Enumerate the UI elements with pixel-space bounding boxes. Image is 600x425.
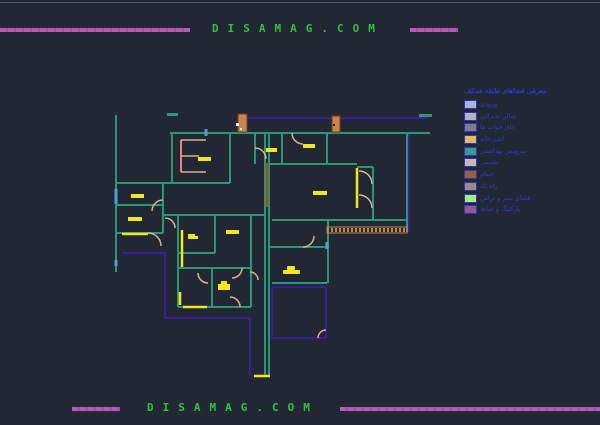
threshold-lines — [122, 168, 357, 376]
toilet-icon — [188, 234, 198, 239]
hatched-balcony — [327, 227, 407, 233]
car-icon — [283, 266, 300, 274]
legend-swatch — [464, 135, 477, 144]
legend-item: فضای سبز و تراس — [464, 194, 574, 203]
legend-label: حمام — [480, 170, 494, 179]
legend-item: سالن پذیرایی — [464, 112, 574, 121]
legend-item: آشپزخانه — [464, 135, 574, 144]
legend-panel: معرفی فضاهای طبقه همکف ورودیسالن پذیرایی… — [464, 87, 574, 217]
legend-swatch — [464, 205, 477, 214]
footer-decorative-bar-left — [72, 407, 120, 411]
legend-rows: ورودیسالن پذیراییاتاق خواب هاآشپزخانهسرو… — [464, 100, 574, 214]
legend-swatch — [464, 112, 477, 121]
legend-item: اتاق خواب ها — [464, 123, 574, 132]
legend-label: اتاق خواب ها — [480, 123, 515, 132]
legend-swatch — [464, 158, 477, 167]
toilet-icon — [218, 281, 230, 290]
legend-label: راه پله — [480, 182, 498, 191]
staircase — [181, 140, 206, 172]
legend-swatch — [464, 170, 477, 179]
legend-label: آشپزخانه — [480, 135, 504, 144]
column-blocks — [236, 114, 340, 132]
legend-label: سالن پذیرایی — [480, 112, 516, 121]
legend-label: فضای سبز و تراس — [480, 194, 531, 203]
legend-label: پارکینگ و حیاط — [480, 205, 521, 214]
legend-label: ورودی — [480, 100, 497, 109]
legend-swatch — [464, 147, 477, 156]
legend-label: سرویس بهداشتی — [480, 147, 527, 156]
footer-decorative-bar-right — [340, 407, 600, 411]
window-segments — [116, 129, 327, 266]
legend-swatch — [464, 194, 477, 203]
legend-swatch — [464, 182, 477, 191]
dimension-text-marks — [167, 113, 432, 117]
legend-swatch — [464, 123, 477, 132]
legend-item: ورودی — [464, 100, 574, 109]
legend-item: سرویس بهداشتی — [464, 147, 574, 156]
legend-swatch — [464, 100, 477, 109]
footer-site-title: DISAMAG.COM — [147, 401, 319, 414]
legend-item: نشیمن — [464, 158, 574, 167]
legend-item: حمام — [464, 170, 574, 179]
legend-item: پارکینگ و حیاط — [464, 205, 574, 214]
legend-label: نشیمن — [480, 158, 498, 167]
legend-title: معرفی فضاهای طبقه همکف — [464, 87, 574, 95]
legend-item: راه پله — [464, 182, 574, 191]
